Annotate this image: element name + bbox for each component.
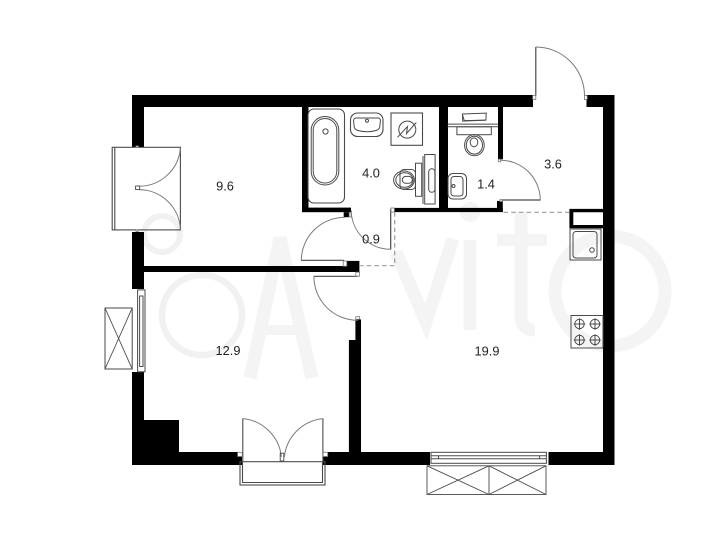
svg-text:9.6: 9.6	[216, 179, 234, 194]
svg-text:19.9: 19.9	[475, 344, 500, 359]
svg-text:3.6: 3.6	[544, 156, 562, 171]
svg-text:1.4: 1.4	[477, 177, 495, 192]
svg-text:4.0: 4.0	[362, 165, 380, 180]
svg-text:12.9: 12.9	[216, 343, 241, 358]
svg-text:0.9: 0.9	[362, 232, 380, 247]
